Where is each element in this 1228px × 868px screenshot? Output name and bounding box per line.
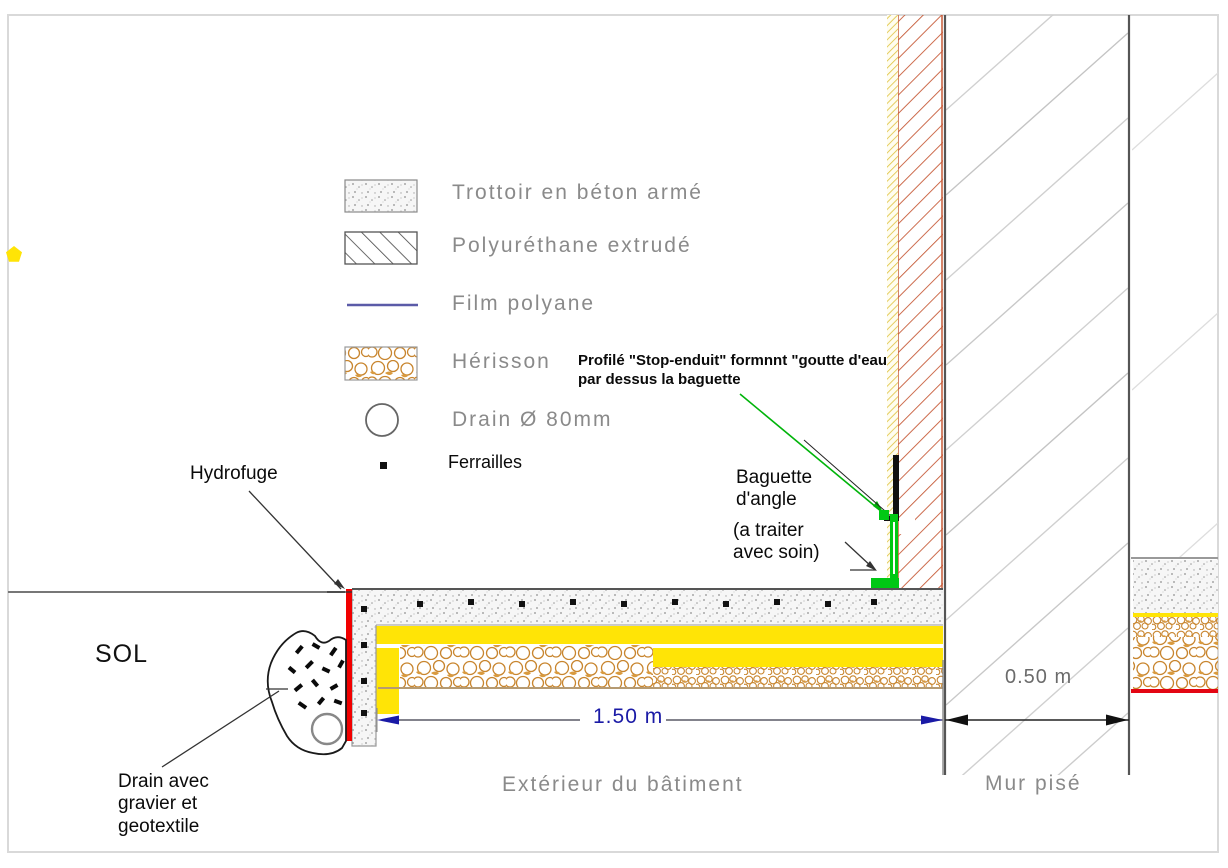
insulation-layer-lower xyxy=(653,648,943,667)
interior-red-line xyxy=(1131,689,1218,693)
interior-concrete xyxy=(1133,560,1218,613)
interior-herisson-small xyxy=(1133,617,1218,637)
drain-gravel-blob xyxy=(268,631,346,754)
legend-swatches xyxy=(345,180,418,469)
legend-label-ferrailles: Ferrailles xyxy=(448,452,522,473)
legend-label-herisson: Hérisson xyxy=(452,350,551,375)
legend-label-polyurethane: Polyuréthane extrudé xyxy=(452,234,692,259)
annotation-exterieur: Extérieur du bâtiment xyxy=(502,773,744,798)
legend-swatch-polyurethane xyxy=(345,232,417,264)
stop-enduit-profile xyxy=(893,455,899,519)
insulation-edge-vertical xyxy=(376,648,399,714)
legend-label-trottoir: Trottoir en béton armé xyxy=(452,181,703,206)
baguette-top xyxy=(879,510,889,520)
annotation-profil-stop-enduit: Profilé "Stop-enduit" formnnt "goutte d'… xyxy=(578,352,898,390)
mur-pise-wall xyxy=(945,0,1129,868)
drawing-canvas xyxy=(0,0,1228,868)
annotation-baguette-note: (a traiter avec soin) xyxy=(733,520,820,565)
dimension-text-0-50: 0.50 m xyxy=(1005,666,1072,690)
profil-leader-black xyxy=(804,440,893,518)
interior-yellow-layer xyxy=(1133,613,1218,617)
drain-pipe xyxy=(312,714,342,744)
interior-floor-section xyxy=(1131,73,1218,693)
legend-swatch-concrete xyxy=(345,180,417,212)
annotation-baguette: Baguette d'angle xyxy=(736,467,812,512)
annotation-sol: SOL xyxy=(95,640,148,670)
baguette-foot xyxy=(871,578,899,588)
interior-herisson xyxy=(1133,637,1218,689)
legend-swatch-ferrailles xyxy=(380,462,387,469)
insulation-layer-upper xyxy=(376,626,943,644)
legend-swatch-herisson xyxy=(345,347,417,380)
legend-swatch-drain xyxy=(366,404,398,436)
herisson-layer-right xyxy=(653,667,943,688)
annotation-drain-note: Drain avec gravier et geotextile xyxy=(118,771,209,838)
herisson-layer-left xyxy=(400,645,653,688)
concrete-edge-beam xyxy=(352,590,376,746)
dimension-text-1-50: 1.50 m xyxy=(593,705,663,730)
annotation-mur-pise: Mur pisé xyxy=(985,772,1082,797)
annotation-hydrofuge: Hydrofuge xyxy=(190,463,278,485)
technical-drawing-page: Trottoir en béton armé Polyuréthane extr… xyxy=(0,0,1228,868)
legend-label-drain: Drain Ø 80mm xyxy=(452,408,613,433)
legend-label-film-polyane: Film polyane xyxy=(452,292,595,317)
